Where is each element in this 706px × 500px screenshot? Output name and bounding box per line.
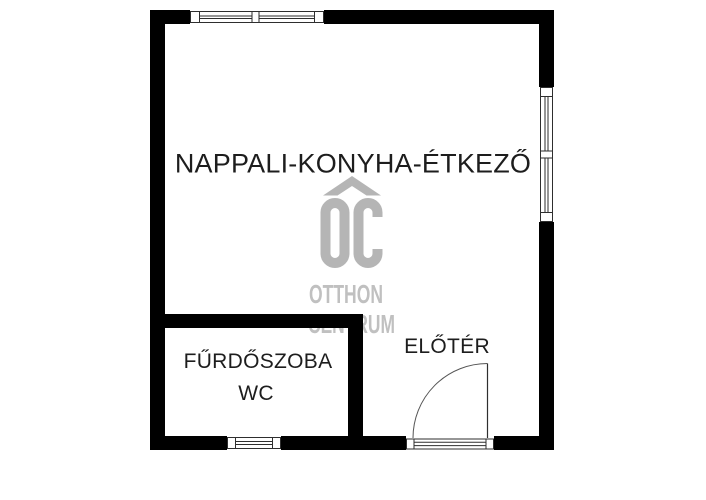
floorplan-drawing: OC OTTHON CENTRUM (0, 0, 706, 500)
wall-top-left (150, 10, 190, 24)
window-right (541, 88, 553, 222)
window-right-jamb-top (541, 88, 553, 97)
room-label-living-kitchen-dining: NAPPALI-KONYHA-ÉTKEZŐ (175, 149, 531, 180)
wall-right-lower (539, 222, 554, 450)
door-jamb-right (486, 439, 494, 449)
wall-right-upper (539, 10, 554, 87)
room-label-bathroom: FŰRDŐSZOBA (184, 350, 333, 374)
window-bathroom-jamb-left (228, 438, 236, 449)
window-top (191, 12, 324, 23)
wall-bottom-left (150, 436, 227, 450)
room-label-hallway: ELŐTÉR (404, 335, 490, 359)
door-threshold (407, 439, 494, 449)
watermark-line1: OTTHON (309, 279, 383, 309)
wall-interior-vertical (348, 314, 363, 450)
window-bathroom-jamb-right (273, 438, 281, 449)
floorplan-canvas: OC OTTHON CENTRUM (0, 0, 706, 500)
wall-bottom-middle (281, 436, 406, 450)
window-bathroom (228, 438, 281, 449)
window-right-mullion (541, 151, 553, 158)
door-swing-arc (413, 364, 488, 439)
entry-door (407, 364, 494, 450)
wall-left (150, 10, 165, 450)
door-jamb-left (407, 439, 415, 449)
window-top-jamb-right (315, 12, 324, 23)
wall-bottom-right (494, 436, 554, 450)
window-top-jamb-left (191, 12, 200, 23)
window-top-mullion (252, 12, 259, 23)
walls (150, 10, 554, 450)
window-right-jamb-bottom (541, 213, 553, 222)
room-label-wc: WC (238, 382, 274, 406)
oc-logo: OC (326, 203, 378, 263)
wall-interior-horizontal (150, 314, 363, 328)
wall-top-right (324, 10, 554, 24)
